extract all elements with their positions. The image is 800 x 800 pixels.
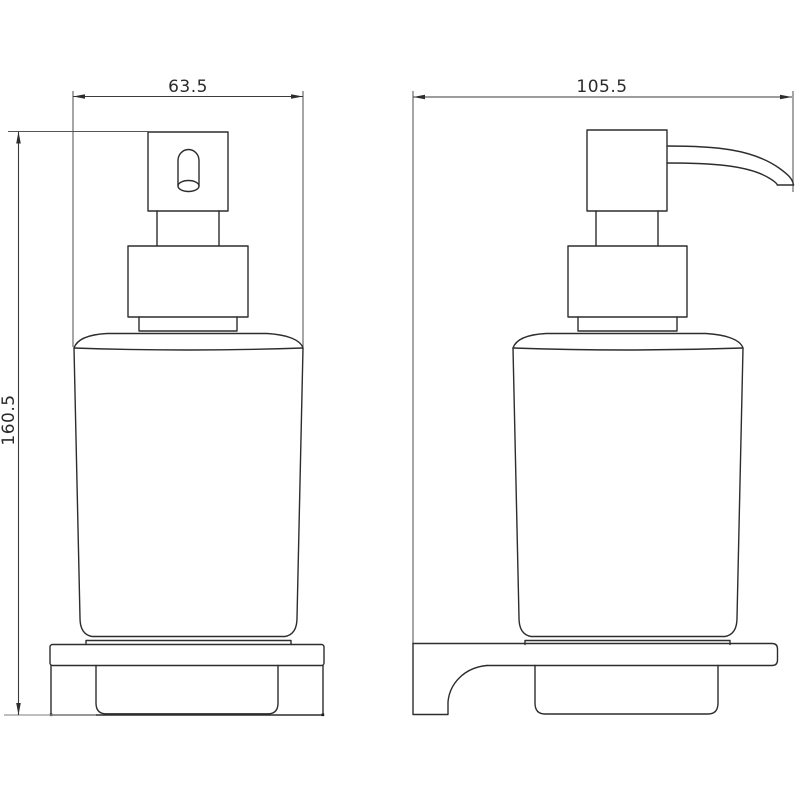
spout-bottom-edge bbox=[667, 163, 777, 185]
arrowhead-up-icon bbox=[16, 132, 21, 144]
pump-head-side bbox=[587, 130, 667, 211]
bottle-shoulder-line bbox=[74, 348, 303, 350]
drawing-canvas: 63.5 1 bbox=[0, 0, 800, 800]
holder-plate-side bbox=[413, 644, 778, 666]
pump-spout bbox=[667, 146, 794, 185]
pump-collar bbox=[128, 246, 248, 317]
bottle-front bbox=[74, 334, 303, 645]
front-width-label: 63.5 bbox=[168, 77, 208, 97]
side-view: 105.5 bbox=[413, 77, 794, 715]
pump-head bbox=[148, 132, 228, 211]
pump-neck bbox=[157, 211, 219, 246]
arrowhead-down-icon bbox=[16, 703, 21, 715]
technical-drawing: 63.5 1 bbox=[0, 0, 800, 800]
wall-bracket bbox=[413, 644, 487, 715]
collar-rim-side bbox=[578, 317, 677, 331]
collar-rim bbox=[139, 317, 237, 331]
bottle-shoulder-line bbox=[513, 348, 743, 350]
bottle-outline bbox=[513, 334, 743, 637]
side-depth-dimension: 105.5 bbox=[413, 77, 793, 644]
holder-side bbox=[413, 644, 778, 715]
holder-cup-bottom bbox=[535, 666, 718, 715]
arrowhead-left-icon bbox=[413, 95, 425, 100]
bottle-side bbox=[513, 334, 743, 645]
height-dimension: 160.5 bbox=[0, 132, 148, 716]
pump-nozzle-opening bbox=[178, 150, 199, 192]
nozzle-outlet bbox=[178, 181, 199, 192]
holder-plate bbox=[50, 645, 324, 666]
height-label: 160.5 bbox=[0, 394, 19, 445]
front-view: 63.5 bbox=[50, 77, 324, 716]
bottle-outline bbox=[74, 334, 303, 637]
front-width-dimension: 63.5 bbox=[73, 77, 303, 347]
holder-front bbox=[50, 645, 324, 717]
holder-ring-inner bbox=[96, 666, 278, 714]
corner-dot-right bbox=[322, 714, 325, 717]
arrowhead-left-icon bbox=[73, 94, 85, 99]
holder-ring-outer bbox=[51, 666, 323, 716]
side-depth-label: 105.5 bbox=[576, 77, 627, 97]
arrowhead-right-icon bbox=[291, 94, 303, 99]
pump-collar-side bbox=[568, 246, 687, 317]
arrowhead-right-icon bbox=[780, 95, 792, 100]
pump-neck-side bbox=[596, 211, 658, 246]
